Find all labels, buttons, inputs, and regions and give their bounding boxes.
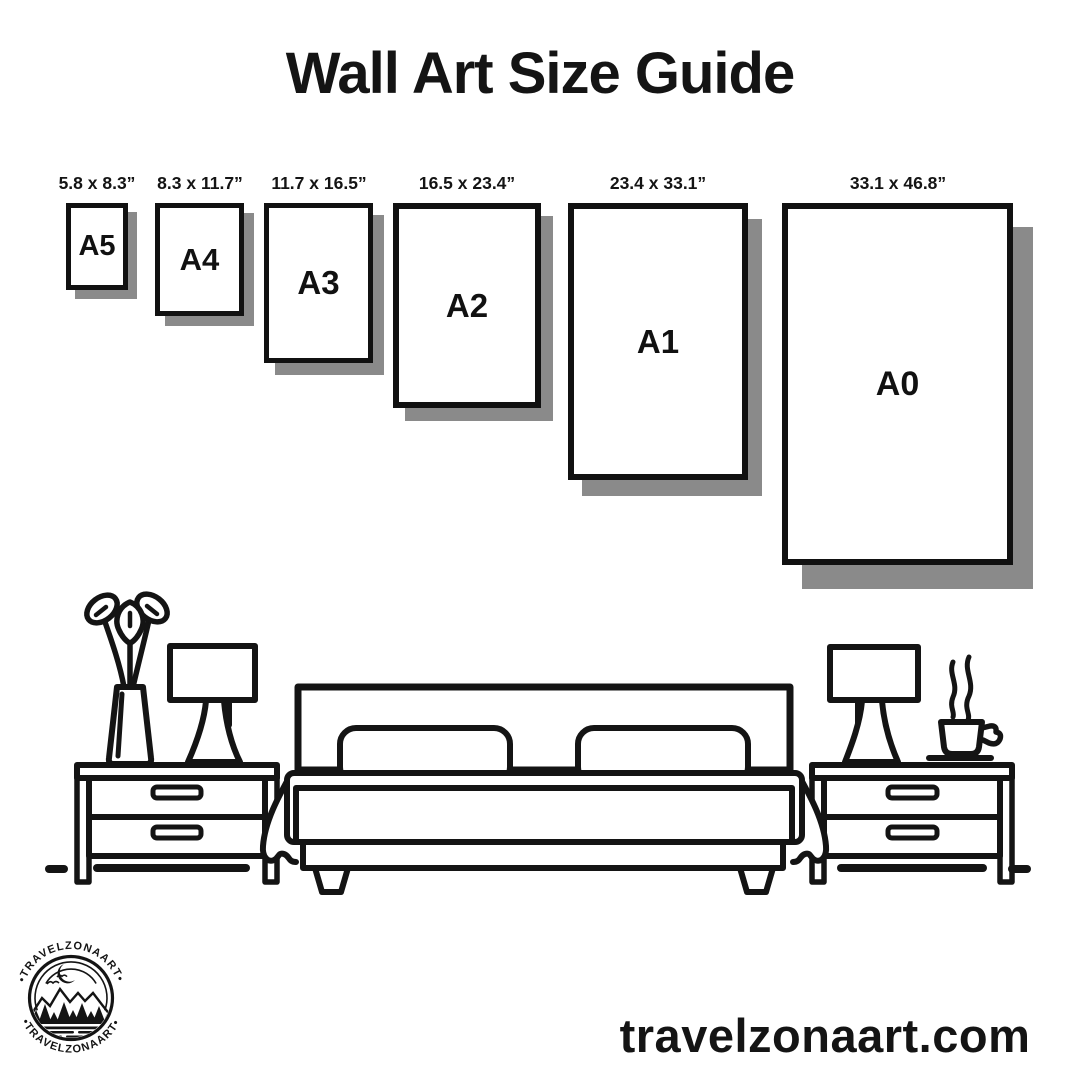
mountain-scene-icon xyxy=(29,957,113,1043)
bird-icon xyxy=(47,982,59,985)
nightstand-right-icon xyxy=(812,765,1012,882)
size-frame-a4: A4 xyxy=(155,203,244,316)
dimension-label-a5: 5.8 x 8.3” xyxy=(59,173,136,194)
size-code-a2: A2 xyxy=(446,287,488,325)
size-frame-a5: A5 xyxy=(66,203,128,290)
bedroom-illustration xyxy=(0,580,1080,900)
moon-icon xyxy=(58,964,75,983)
table-lamp-right-icon xyxy=(830,647,918,762)
nightstand-left-icon xyxy=(77,765,277,882)
coffee-cup-icon xyxy=(929,657,1001,758)
size-frame-a3: A3 xyxy=(264,203,373,363)
forest-icon xyxy=(30,1002,112,1024)
page-title: Wall Art Size Guide xyxy=(0,42,1080,106)
dimension-label-a0: 33.1 x 46.8” xyxy=(850,173,946,194)
website-url: travelzonaart.com xyxy=(560,1008,1080,1063)
size-code-a3: A3 xyxy=(297,264,339,302)
dimension-label-a1: 23.4 x 33.1” xyxy=(610,173,706,194)
dimension-label-a4: 8.3 x 11.7” xyxy=(157,173,243,194)
size-code-a4: A4 xyxy=(180,242,220,278)
table-lamp-left-icon xyxy=(170,646,255,762)
size-frame-a1: A1 xyxy=(568,203,748,480)
dimension-label-a3: 11.7 x 16.5” xyxy=(271,173,366,194)
size-guide-infographic: Wall Art Size Guide 5.8 x 8.3” 8.3 x 11.… xyxy=(0,0,1080,1080)
double-bed-icon xyxy=(263,687,826,892)
size-code-a0: A0 xyxy=(876,365,919,404)
size-frame-a0: A0 xyxy=(782,203,1013,565)
dimension-label-a2: 16.5 x 23.4” xyxy=(419,173,515,194)
vase-with-flowers-icon xyxy=(82,588,173,764)
brand-logo: •TRAVELZONAART• •TRAVELZONAART• xyxy=(4,926,140,1076)
size-code-a5: A5 xyxy=(78,230,115,263)
size-code-a1: A1 xyxy=(637,323,679,361)
size-frame-a2: A2 xyxy=(393,203,541,408)
